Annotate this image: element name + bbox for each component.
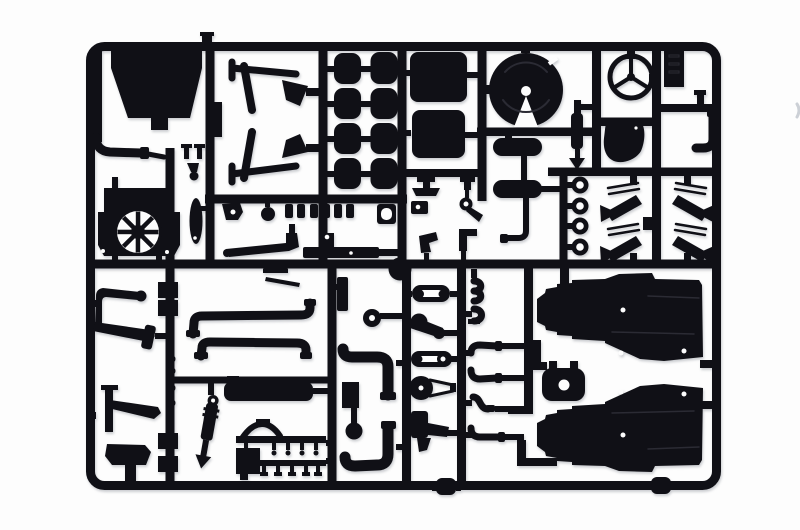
runner-block [208,102,222,137]
photo-canvas: Black injection-molded model kit sprue (… [0,0,800,530]
radiator-fan [98,177,180,261]
sprue-photo: Black injection-molded model kit sprue (… [0,0,800,530]
steering-hub [627,73,635,81]
runner-tab [664,46,684,87]
fan-hub [131,225,145,239]
sprue-gate-nub [200,32,214,36]
junction-ball [389,258,412,281]
